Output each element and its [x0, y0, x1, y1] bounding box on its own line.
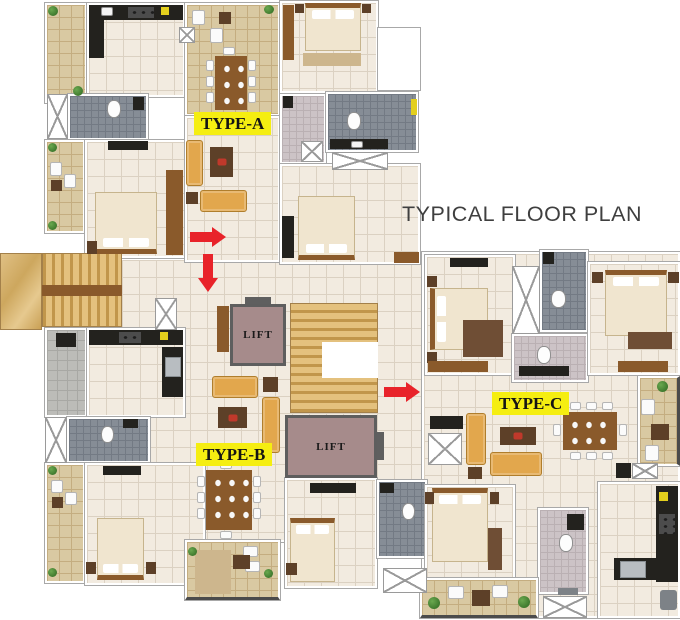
duct: [332, 152, 388, 170]
bed: [298, 196, 355, 260]
duct: [428, 433, 462, 465]
side-table: [668, 272, 679, 283]
side-table: [472, 590, 490, 606]
plant: [73, 86, 83, 96]
lounge-chair: [210, 28, 223, 43]
washing-machine: [56, 333, 76, 347]
side-table: [146, 562, 156, 574]
kitchen-accessory: [160, 332, 168, 340]
sofa: [212, 376, 258, 398]
entry-arrow-type-a-icon: [190, 227, 226, 247]
shoe-cabinet: [616, 463, 631, 478]
plant: [48, 466, 57, 475]
side-table: [87, 241, 97, 254]
side-table: [425, 492, 434, 504]
dining-chair: [206, 76, 214, 87]
toilet: [107, 100, 121, 118]
dining-chair: [253, 476, 261, 487]
duct: [179, 27, 195, 43]
sofa: [466, 413, 486, 465]
dining-table: [206, 470, 252, 530]
side-table: [51, 180, 62, 191]
coffee-table: [210, 147, 233, 177]
side-table: [427, 276, 437, 287]
dining-chair: [586, 452, 597, 460]
lounge-chair: [65, 492, 77, 505]
dining-chair: [253, 508, 261, 519]
duct: [155, 298, 177, 330]
plant: [48, 6, 58, 16]
dining-chair: [197, 492, 205, 503]
side-table: [263, 377, 278, 392]
dresser: [428, 361, 488, 372]
wash-basin: [567, 514, 584, 530]
lift-shaft: LIFT: [230, 304, 286, 366]
dining-chair: [223, 47, 235, 55]
duct: [301, 141, 323, 162]
duct: [543, 596, 587, 618]
toilet: [402, 503, 415, 520]
duct: [47, 94, 68, 139]
refrigerator: [620, 561, 646, 578]
side-table: [592, 272, 603, 283]
coffee-table: [218, 407, 247, 428]
plant: [657, 381, 668, 392]
stove: [119, 332, 141, 343]
wash-basin: [543, 252, 554, 264]
duct: [632, 463, 658, 479]
lift-label: LIFT: [243, 329, 273, 341]
toilet: [559, 534, 573, 552]
kitchen-counter: [89, 20, 104, 58]
lift-door: [377, 432, 384, 460]
dining-chair: [619, 424, 627, 436]
plant: [48, 568, 57, 577]
arrow-head: [212, 227, 226, 247]
sofa: [186, 140, 203, 186]
dining-chair: [248, 76, 256, 87]
vanity-counter: [519, 366, 569, 376]
cabinet: [217, 306, 229, 352]
duct: [512, 266, 540, 334]
plant: [48, 143, 57, 152]
dining-chair: [248, 92, 256, 103]
toilet: [347, 112, 361, 130]
floor-plan: LIFT LIFT: [0, 0, 680, 620]
wardrobe: [103, 466, 141, 475]
arrow-shaft: [190, 232, 212, 242]
dining-chair: [197, 476, 205, 487]
coffee-table: [500, 427, 536, 445]
side-table: [219, 12, 231, 24]
side-table: [362, 4, 371, 13]
sofa: [200, 190, 247, 212]
dining-chair: [206, 60, 214, 71]
wardrobe: [166, 170, 183, 255]
toilet: [537, 346, 551, 364]
side-table: [490, 492, 499, 504]
kitchen-accessory: [659, 492, 668, 501]
dining-chair: [197, 508, 205, 519]
entry-arrow-type-b-icon: [198, 254, 218, 292]
dining-chair: [570, 452, 581, 460]
wardrobe: [450, 258, 488, 267]
refrigerator: [165, 357, 181, 377]
sofa: [490, 452, 542, 476]
side-table: [233, 555, 250, 569]
plant: [188, 547, 197, 556]
entry-arrow-type-c-icon: [384, 382, 420, 402]
rug: [463, 320, 503, 357]
plant: [48, 221, 57, 230]
dining-table: [215, 56, 247, 110]
dining-chair: [206, 92, 214, 103]
stair-rail: [42, 285, 122, 296]
wash-basin: [351, 141, 363, 148]
side-table: [186, 192, 198, 204]
plant: [264, 569, 273, 578]
dining-chair: [248, 60, 256, 71]
dining-chair: [570, 402, 581, 410]
toilet: [101, 426, 114, 443]
plant: [518, 596, 530, 608]
tv-unit: [282, 216, 294, 258]
lounge-chair: [192, 10, 205, 25]
unit-label-type-c: TYPE-C: [492, 392, 569, 415]
stool: [660, 590, 677, 610]
wash-basin: [133, 97, 144, 110]
open-balcony: [378, 28, 420, 90]
dresser: [394, 252, 419, 263]
stair-landing: [322, 342, 378, 378]
side-table: [468, 467, 482, 479]
stove: [128, 7, 154, 18]
toilet: [551, 290, 566, 308]
dining-chair: [253, 492, 261, 503]
dresser: [108, 141, 148, 150]
unit-label-type-b: TYPE-B: [196, 443, 272, 466]
dining-chair: [602, 452, 613, 460]
lounge-chair: [50, 162, 62, 176]
side-table: [286, 563, 297, 575]
duct: [45, 417, 67, 463]
unit-label-type-a: TYPE-A: [194, 112, 271, 135]
duct: [383, 568, 427, 593]
side-table: [295, 4, 304, 13]
dining-chair: [220, 531, 232, 539]
tv-unit: [430, 416, 463, 429]
stove: [659, 514, 675, 534]
lounge-chair: [64, 174, 76, 188]
dresser: [618, 361, 668, 372]
rug: [195, 550, 231, 594]
dining-chair: [553, 424, 561, 436]
page-title: TYPICAL FLOOR PLAN: [402, 202, 642, 227]
kitchen-sink: [101, 7, 113, 16]
side-table: [651, 424, 669, 440]
wash-basin: [283, 96, 293, 108]
lounge-chair: [448, 586, 464, 599]
towel-rack: [411, 99, 417, 115]
stair-landing: [0, 253, 42, 330]
arrow-shaft: [203, 254, 213, 278]
side-table: [52, 497, 63, 508]
lounge-chair: [51, 480, 63, 493]
lift-shaft: LIFT: [285, 415, 377, 478]
side-table: [86, 562, 96, 574]
dining-chair: [602, 402, 613, 410]
kitchen-accessory: [161, 7, 169, 15]
lounge-chair: [641, 399, 655, 415]
rug: [628, 332, 672, 349]
bath-mat: [558, 588, 578, 595]
arrow-head: [198, 278, 218, 292]
bed: [97, 518, 144, 580]
wash-basin: [380, 483, 394, 493]
arrow-shaft: [384, 387, 406, 397]
rug: [488, 528, 502, 570]
dining-chair: [586, 402, 597, 410]
dining-table: [563, 412, 617, 450]
wardrobe: [283, 5, 294, 60]
bed: [305, 3, 361, 51]
arrow-head: [406, 382, 420, 402]
plant: [428, 597, 440, 609]
rug: [303, 53, 361, 66]
lounge-chair: [492, 585, 508, 598]
bed: [432, 488, 488, 562]
plant: [264, 5, 274, 14]
bed: [95, 192, 157, 254]
bed: [605, 270, 667, 336]
lounge-chair: [645, 445, 659, 461]
wardrobe: [310, 483, 356, 493]
lift-label: LIFT: [316, 441, 346, 453]
wash-basin: [123, 419, 138, 428]
